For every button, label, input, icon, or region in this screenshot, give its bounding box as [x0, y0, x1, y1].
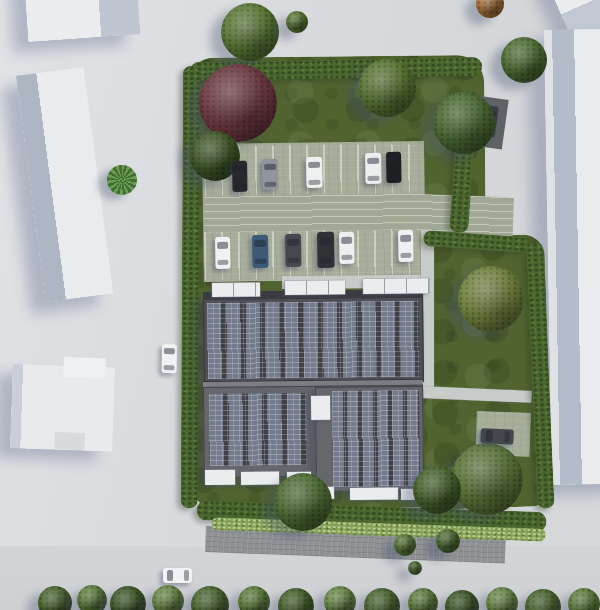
parked-car-north-3 — [306, 157, 323, 188]
neighbor-building-right — [544, 28, 600, 485]
parked-car-south-5 — [339, 232, 355, 264]
parking-lane — [204, 193, 422, 232]
solar-panels-south-right — [332, 390, 420, 487]
roof-terrace-1 — [212, 282, 260, 297]
bush-walk-3 — [408, 561, 422, 575]
tree-lawn-northeast — [358, 59, 416, 117]
solar-panels-south-left — [209, 393, 307, 466]
south-balcony-5 — [350, 487, 398, 500]
tree-top-big — [221, 3, 279, 61]
street-car-bottom-road — [163, 568, 192, 583]
neighbor-building-bottom-left-step — [63, 357, 106, 378]
bush-walk-2 — [436, 529, 460, 553]
street-tree-4 — [152, 585, 184, 610]
parked-car-north-1 — [232, 161, 248, 192]
tree-northeast-pad — [433, 92, 495, 154]
palm-plaza — [107, 165, 137, 195]
tree-east-big — [458, 266, 524, 332]
street-car-left-road — [161, 344, 177, 373]
parking-stall-row-south — [204, 229, 423, 280]
solar-panels-north — [207, 301, 420, 379]
bush-walk-1 — [394, 534, 416, 556]
tree-southwest-walk — [274, 473, 332, 531]
parked-car-south-3 — [285, 234, 302, 267]
parked-car-north-5 — [386, 152, 402, 183]
street-tree-8 — [324, 586, 356, 610]
tree-southeast-small — [413, 466, 461, 514]
aerial-site-render — [0, 0, 600, 610]
neighbor-building-top-left — [24, 0, 140, 42]
tree-road-east — [501, 37, 547, 83]
tree-southeast-big — [451, 443, 523, 515]
street-tree-2 — [77, 585, 107, 610]
tree-orange-top — [476, 0, 504, 18]
parked-car-south-6 — [398, 230, 414, 262]
street-tree-6 — [238, 586, 270, 610]
neighbor-building-left — [16, 67, 113, 302]
roof-terrace-3 — [363, 278, 429, 294]
parked-car-south-1 — [215, 237, 231, 269]
neighbor-building-bottom-left-notch — [54, 432, 85, 450]
parked-van-south-4 — [317, 232, 335, 268]
roof-terrace-2 — [285, 280, 345, 295]
street-tree-10 — [408, 588, 438, 610]
roof-skylight — [311, 396, 330, 420]
parked-car-north-2 — [262, 159, 279, 190]
south-balcony-2 — [241, 472, 279, 485]
south-balcony-1 — [205, 470, 235, 485]
parked-car-north-4 — [365, 153, 382, 184]
parked-car-southeast-spot — [480, 428, 514, 445]
tree-top-small — [286, 11, 308, 33]
hedge-left — [181, 66, 200, 508]
parked-car-south-2 — [252, 235, 269, 268]
